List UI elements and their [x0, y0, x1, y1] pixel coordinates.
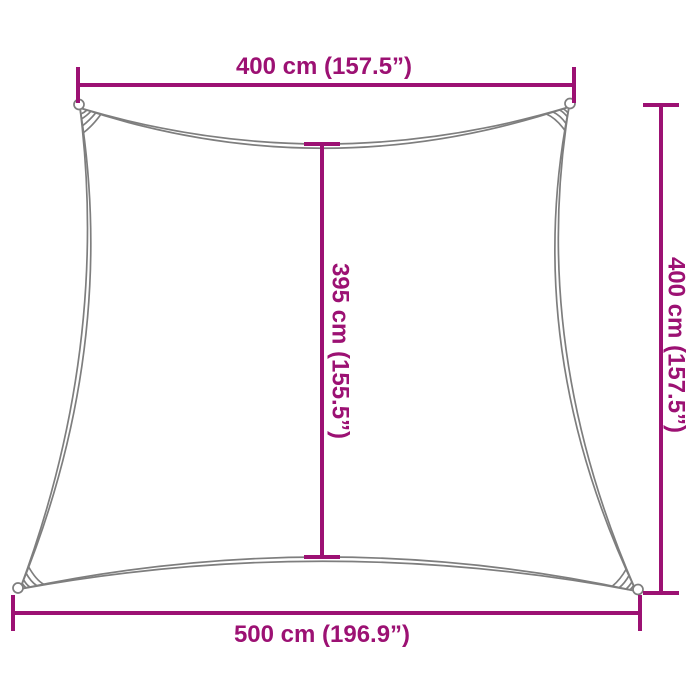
right-dimension-label: 400 cm (157.5”)	[663, 257, 690, 433]
sail-top-edge-outer	[80, 107, 569, 144]
grommet-ring-bottom-right-icon	[633, 585, 643, 595]
grommet-ring-bottom-left-icon	[13, 583, 23, 593]
top-dimension-label: 400 cm (157.5”)	[236, 53, 412, 80]
center-dimension-label: 395 cm (155.5”)	[327, 263, 354, 439]
bottom-dimension-label: 500 cm (196.9”)	[234, 621, 410, 648]
shade-sail-diagram-canvas: 400 cm (157.5”) 400 cm (157.5”) 395 cm (…	[0, 0, 700, 700]
sail-right-edge-inner	[555, 107, 636, 591]
sail-right-edge-outer	[558, 107, 636, 591]
dimension-diagram: 400 cm (157.5”) 400 cm (157.5”) 395 cm (…	[0, 0, 700, 700]
sail-bottom-edge-inner	[20, 561, 636, 591]
sail-left-edge-outer	[20, 108, 88, 589]
